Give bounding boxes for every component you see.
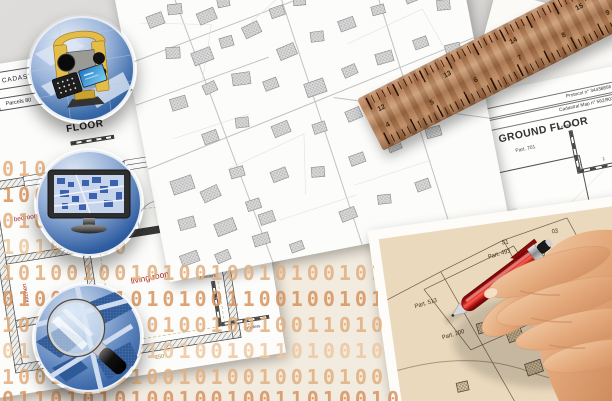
svg-text:Part.: Part.	[541, 252, 554, 260]
svg-text:Part. 611: Part. 611	[492, 307, 515, 319]
svg-text:Part. 200: Part. 200	[441, 329, 465, 342]
monitor-map-icon	[34, 148, 144, 258]
magnifier-map-icon	[32, 282, 144, 394]
kitchen-label: kitchen	[22, 283, 31, 303]
badge-total-station	[27, 14, 137, 124]
badge-magnifier-map	[32, 282, 144, 394]
photo-collage-stage: CADASTRE Protocol n° 34 Cadastral Ma Par…	[0, 0, 612, 401]
sepia-buildings	[439, 239, 612, 401]
total-station-icon	[27, 14, 137, 124]
badge-monitor-map	[34, 148, 144, 258]
sepia-map: S1 03 Part. 493 Part. Part. 513 Part. 61…	[379, 200, 612, 401]
svg-text:S1: S1	[501, 239, 509, 246]
svg-text:Part. 493: Part. 493	[488, 248, 512, 261]
svg-text:Part. 513: Part. 513	[414, 297, 438, 310]
mini-scale-bar	[70, 135, 114, 146]
svg-text:250: 250	[155, 354, 165, 361]
svg-text:03: 03	[551, 228, 559, 235]
monitor-base	[71, 225, 107, 234]
parcel-boundaries	[380, 205, 612, 401]
